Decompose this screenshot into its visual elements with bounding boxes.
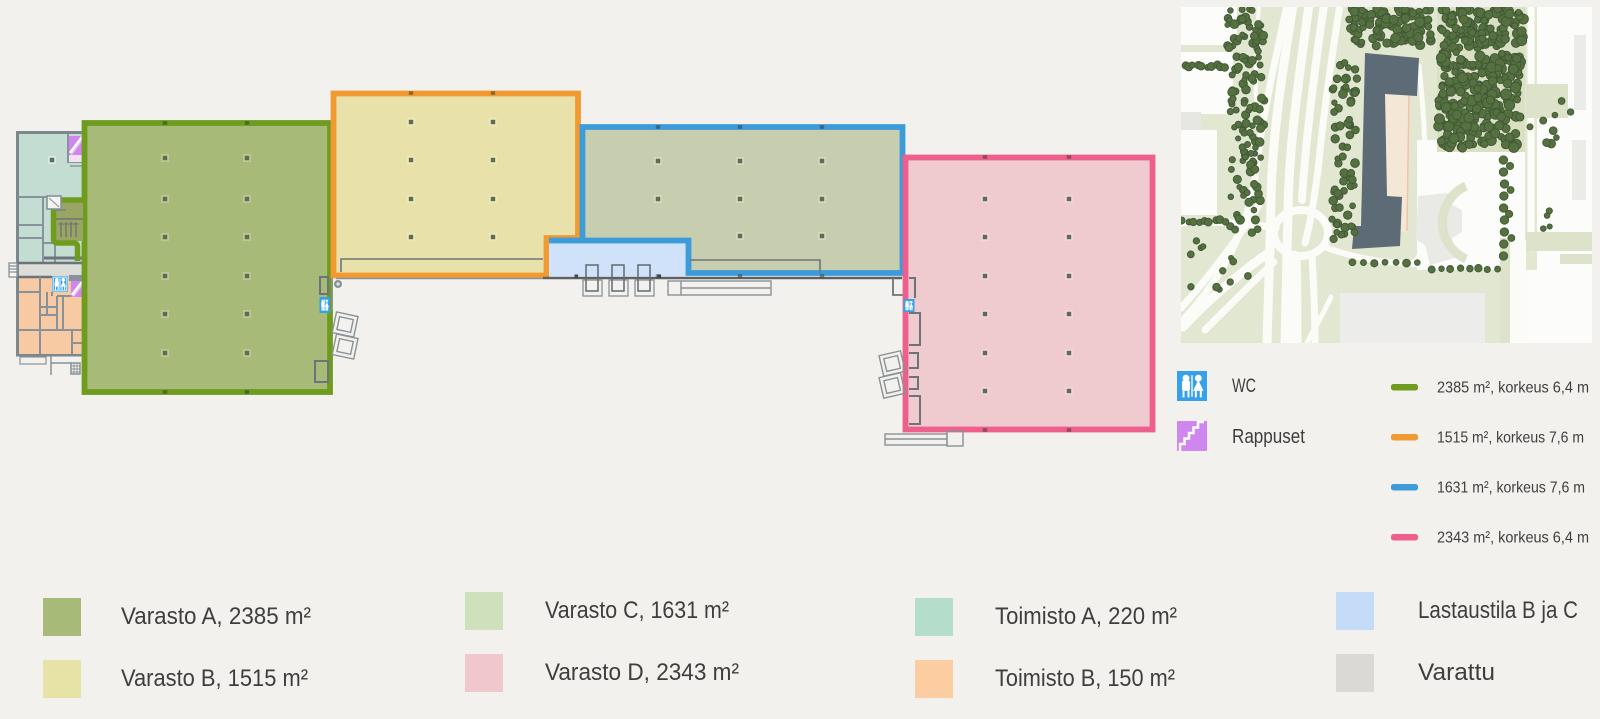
svg-text:Varattu: Varattu — [1418, 659, 1495, 686]
svg-text:2385 m², korkeus 6,4 m: 2385 m², korkeus 6,4 m — [1437, 380, 1589, 397]
svg-text:Toimisto A, 220 m²: Toimisto A, 220 m² — [995, 603, 1177, 630]
svg-text:Varasto A, 2385 m²: Varasto A, 2385 m² — [121, 603, 311, 630]
svg-text:Lastaustila B ja C: Lastaustila B ja C — [1418, 597, 1578, 624]
svg-text:WC: WC — [1232, 376, 1256, 397]
svg-text:1631 m², korkeus 7,6 m: 1631 m², korkeus 7,6 m — [1437, 480, 1585, 497]
svg-text:1515 m², korkeus 7,6 m: 1515 m², korkeus 7,6 m — [1437, 430, 1584, 447]
svg-text:Varasto C, 1631 m²: Varasto C, 1631 m² — [545, 597, 729, 624]
svg-text:Toimisto B, 150 m²: Toimisto B, 150 m² — [995, 665, 1175, 692]
svg-text:Varasto B, 1515 m²: Varasto B, 1515 m² — [121, 665, 308, 692]
svg-text:Varasto D, 2343 m²: Varasto D, 2343 m² — [545, 659, 739, 686]
svg-text:Rappuset: Rappuset — [1232, 426, 1305, 448]
svg-text:2343 m², korkeus 6,4 m: 2343 m², korkeus 6,4 m — [1437, 530, 1589, 547]
